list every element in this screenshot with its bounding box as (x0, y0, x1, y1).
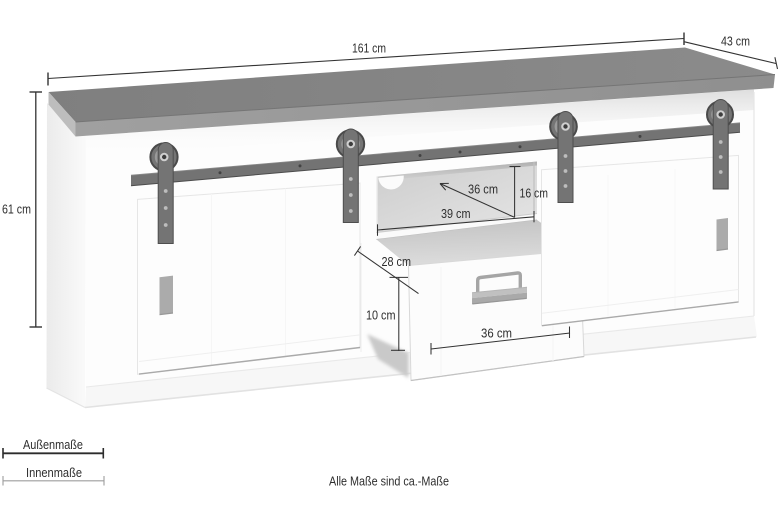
svg-text:Alle Maße sind ca.-Maße: Alle Maße sind ca.-Maße (329, 474, 449, 489)
svg-text:10 cm: 10 cm (366, 308, 396, 323)
svg-text:61 cm: 61 cm (2, 202, 31, 217)
svg-text:36 cm: 36 cm (481, 326, 512, 341)
svg-text:Außenmaße: Außenmaße (23, 437, 83, 452)
svg-text:39 cm: 39 cm (441, 206, 471, 221)
svg-text:36 cm: 36 cm (468, 182, 498, 197)
svg-text:28 cm: 28 cm (382, 254, 412, 269)
svg-text:161 cm: 161 cm (352, 41, 386, 56)
svg-text:43 cm: 43 cm (721, 34, 750, 49)
svg-text:Innenmaße: Innenmaße (26, 465, 82, 480)
svg-text:16 cm: 16 cm (520, 186, 549, 201)
